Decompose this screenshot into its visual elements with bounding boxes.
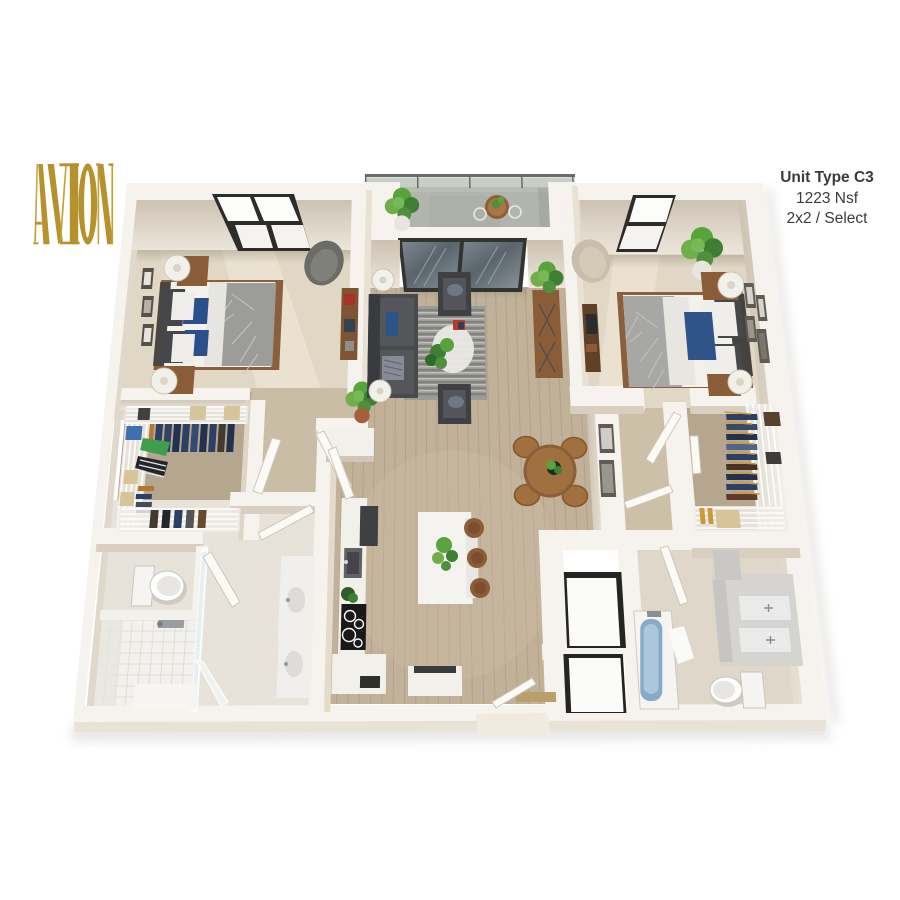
- svg-text:Unit Type C3: Unit Type C3: [780, 169, 874, 186]
- svg-text:2x2 / Select: 2x2 / Select: [787, 210, 869, 227]
- svg-text:1223 Nsf: 1223 Nsf: [796, 190, 859, 207]
